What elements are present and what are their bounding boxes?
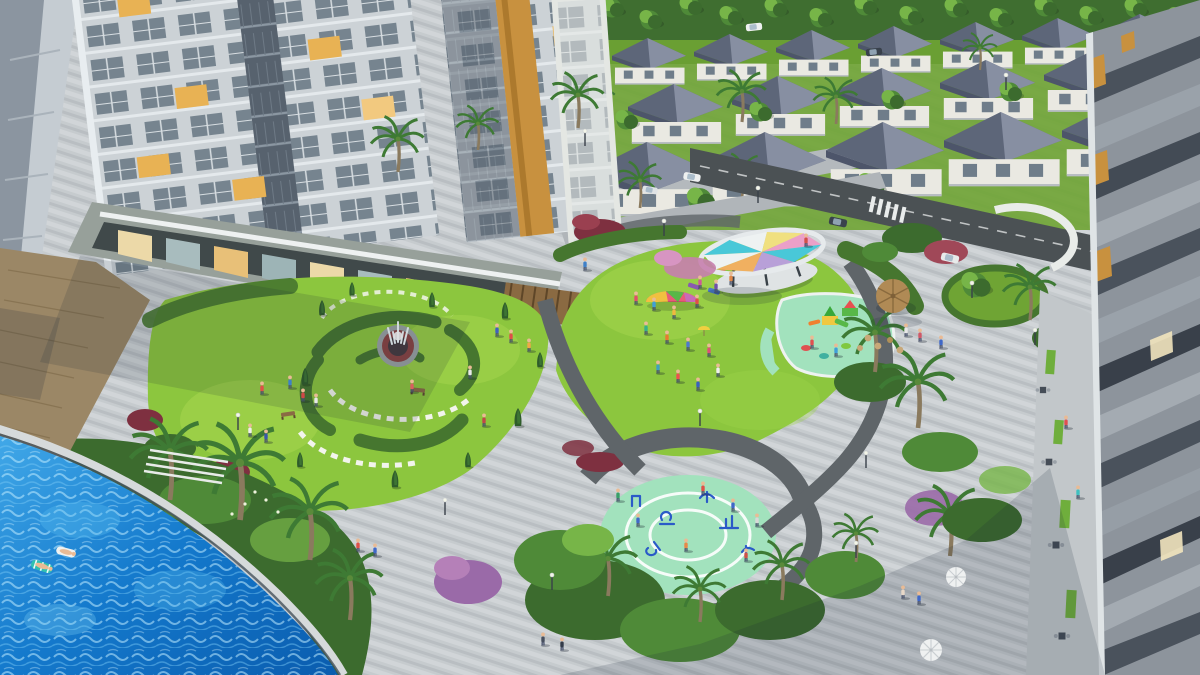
render-viewport	[0, 0, 1200, 675]
aerial-render	[0, 0, 1200, 675]
